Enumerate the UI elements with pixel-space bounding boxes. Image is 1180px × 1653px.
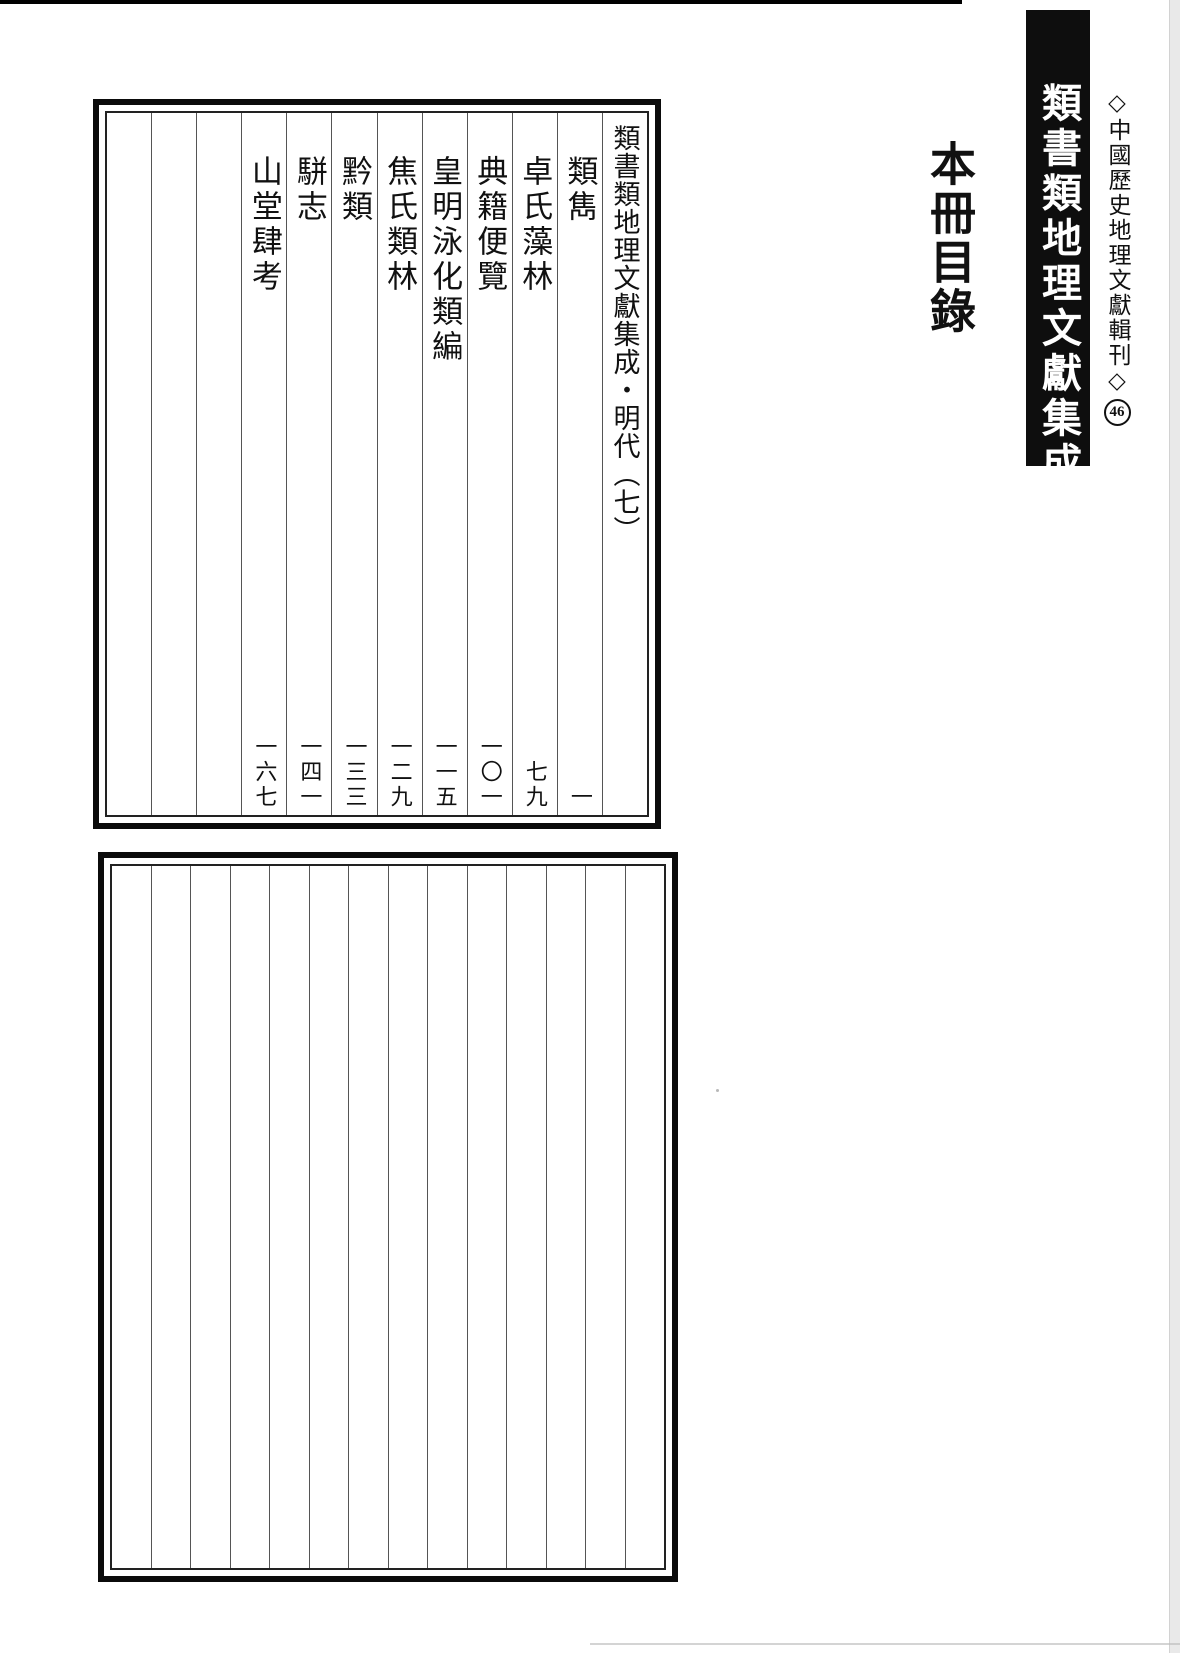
blank-column: [585, 866, 625, 1568]
scan-edge-bottom-line: [590, 1643, 1180, 1645]
toc-entry-column: 焦氏類林一二九: [377, 113, 422, 815]
toc-entry-page: 一四一: [293, 735, 325, 810]
toc-entry-page: 一三三: [338, 735, 370, 810]
toc-columns: 類書類地理文獻集成・明代（七）類雋一卓氏藻林七九典籍便覽一〇一皇明泳化類編一一五…: [107, 113, 647, 815]
toc-entry-page: 一一五: [429, 735, 461, 810]
blank-column: [230, 866, 270, 1568]
toc-entry-title: 典籍便覽: [467, 155, 512, 295]
blank-column: [309, 866, 349, 1568]
toc-entry-page: 一〇一: [474, 735, 506, 810]
toc-header-text: 類書類地理文獻集成・明代（七）: [605, 124, 644, 544]
toc-entry-column: 皇明泳化類編一一五: [422, 113, 467, 815]
blank-column: [546, 866, 586, 1568]
blank-column: [388, 866, 428, 1568]
scanned-book-page: 類書類地理文獻集成 ◇中國歷史地理文獻輯刊◇46 本冊目錄 類書類地理文獻集成・…: [0, 0, 1180, 1653]
toc-entry-title: 駢志: [287, 155, 332, 225]
blank-column: [427, 866, 467, 1568]
blank-frame: [98, 852, 678, 1582]
blank-column: [506, 866, 546, 1568]
blank-column: [190, 866, 230, 1568]
toc-header-column: 類書類地理文獻集成・明代（七）: [602, 113, 647, 815]
toc-entry-page: 一二九: [384, 735, 416, 810]
series-volume-text: ◇中國歷史地理文獻輯刊◇: [1105, 90, 1130, 396]
toc-empty-column: [151, 113, 196, 815]
blank-column: [151, 866, 191, 1568]
toc-empty-column: [196, 113, 241, 815]
toc-entry-title: 類雋: [557, 155, 602, 225]
blank-column: [467, 866, 507, 1568]
toc-entry-column: 駢志一四一: [286, 113, 331, 815]
toc-entry-title: 卓氏藻林: [512, 155, 557, 295]
volume-number-badge: 46: [1104, 399, 1131, 426]
series-volume-label: ◇中國歷史地理文獻輯刊◇46: [1100, 90, 1134, 430]
toc-entry-title: 黔類: [332, 155, 377, 225]
toc-entry-page: 七九: [519, 760, 551, 810]
blank-columns: [112, 866, 664, 1568]
toc-entry-title: 山堂肆考: [242, 155, 287, 295]
toc-entry-title: 皇明泳化類編: [422, 155, 467, 365]
blank-column: [112, 866, 151, 1568]
toc-entry-column: 黔類一三三: [331, 113, 376, 815]
toc-entry-page: 一六七: [248, 735, 280, 810]
page-title: 本冊目錄: [916, 140, 982, 336]
scan-edge-right-strip: [1169, 0, 1180, 1653]
toc-entry-column: 山堂肆考一六七: [241, 113, 286, 815]
blank-column: [625, 866, 665, 1568]
blank-column: [348, 866, 388, 1568]
toc-frame-inner: 類書類地理文獻集成・明代（七）類雋一卓氏藻林七九典籍便覽一〇一皇明泳化類編一一五…: [105, 111, 649, 817]
series-banner: 類書類地理文獻集成: [1026, 10, 1090, 466]
toc-entry-column: 卓氏藻林七九: [512, 113, 557, 815]
toc-entry-column: 類雋一: [557, 113, 602, 815]
toc-frame: 類書類地理文獻集成・明代（七）類雋一卓氏藻林七九典籍便覽一〇一皇明泳化類編一一五…: [93, 99, 661, 829]
toc-empty-column: [107, 113, 151, 815]
toc-entry-title: 焦氏類林: [377, 155, 422, 295]
blank-frame-inner: [110, 864, 666, 1570]
scan-edge-top-rule: [0, 0, 962, 4]
toc-entry-column: 典籍便覽一〇一: [467, 113, 512, 815]
toc-entry-page: 一: [564, 785, 596, 810]
series-banner-title: 類書類地理文獻集成: [1029, 82, 1087, 466]
scan-speck: [716, 1089, 719, 1092]
blank-column: [269, 866, 309, 1568]
